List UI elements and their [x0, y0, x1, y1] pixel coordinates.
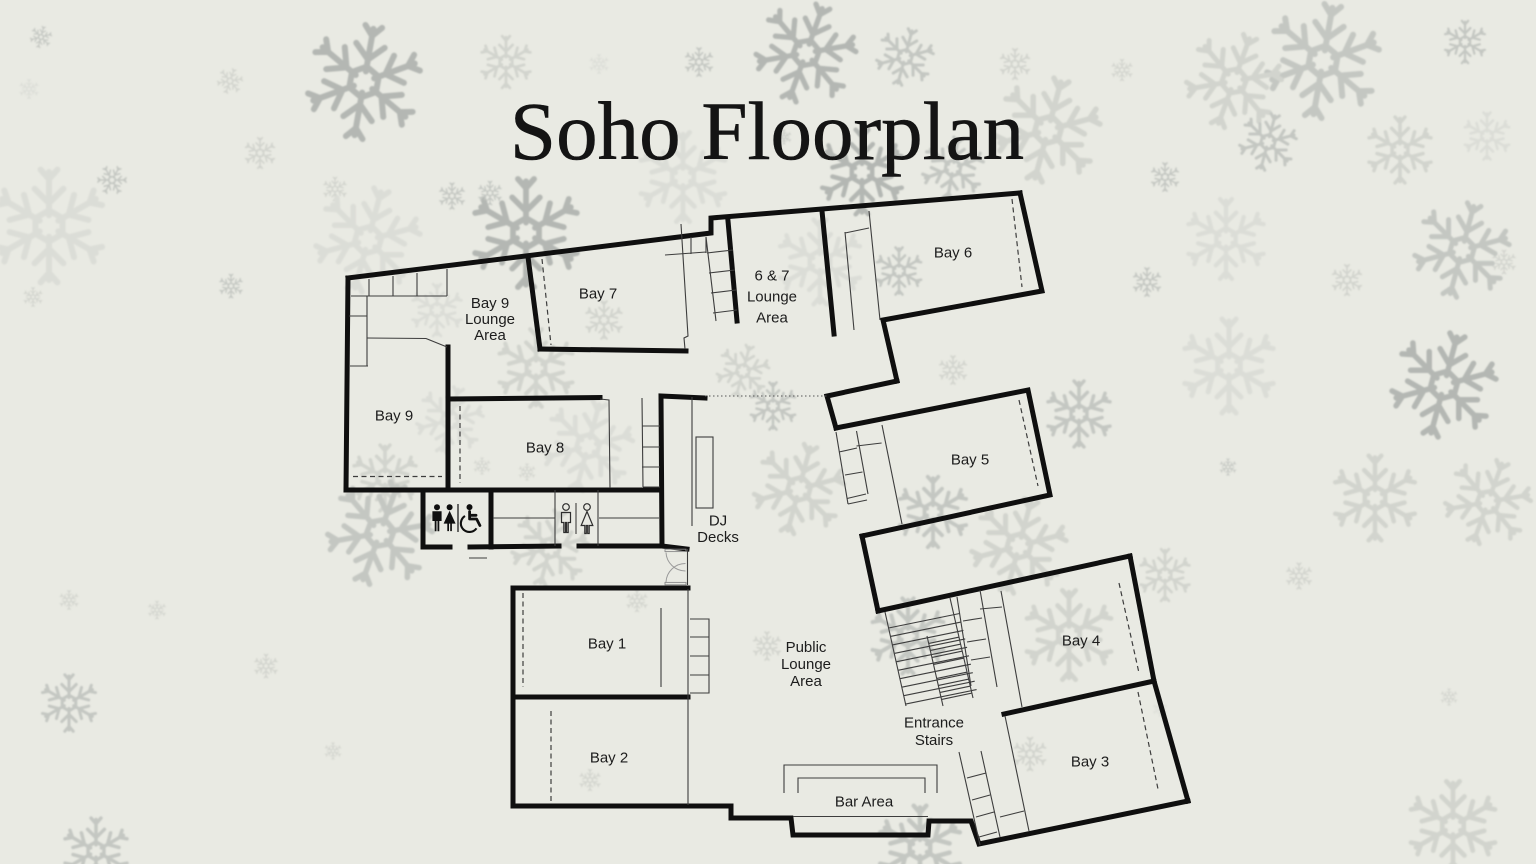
svg-text:Lounge: Lounge	[781, 656, 831, 673]
svg-text:Area: Area	[790, 673, 822, 690]
svg-text:Bay 1: Bay 1	[588, 635, 626, 652]
svg-text:DJ: DJ	[709, 513, 727, 530]
svg-text:Area: Area	[474, 327, 506, 344]
svg-text:Decks: Decks	[697, 529, 739, 546]
svg-text:Lounge: Lounge	[465, 311, 515, 328]
svg-text:Bay 9: Bay 9	[471, 295, 509, 312]
svg-text:Bar Area: Bar Area	[835, 794, 894, 811]
svg-text:Soho Floorplan: Soho Floorplan	[510, 85, 1024, 177]
svg-text:Area: Area	[756, 310, 788, 327]
svg-text:Stairs: Stairs	[915, 732, 953, 749]
svg-text:6 & 7: 6 & 7	[754, 268, 789, 285]
svg-text:Bay 3: Bay 3	[1071, 753, 1109, 770]
svg-text:Bay 2: Bay 2	[590, 749, 628, 766]
svg-text:Bay 5: Bay 5	[951, 451, 989, 468]
svg-text:Lounge: Lounge	[747, 289, 797, 306]
svg-text:Bay 4: Bay 4	[1062, 632, 1100, 649]
svg-text:Entrance: Entrance	[904, 715, 964, 732]
svg-text:Bay 7: Bay 7	[579, 285, 617, 302]
svg-text:Bay 9: Bay 9	[375, 407, 413, 424]
svg-text:Public: Public	[786, 639, 827, 656]
svg-text:Bay 8: Bay 8	[526, 439, 564, 456]
svg-text:Bay 6: Bay 6	[934, 244, 972, 261]
